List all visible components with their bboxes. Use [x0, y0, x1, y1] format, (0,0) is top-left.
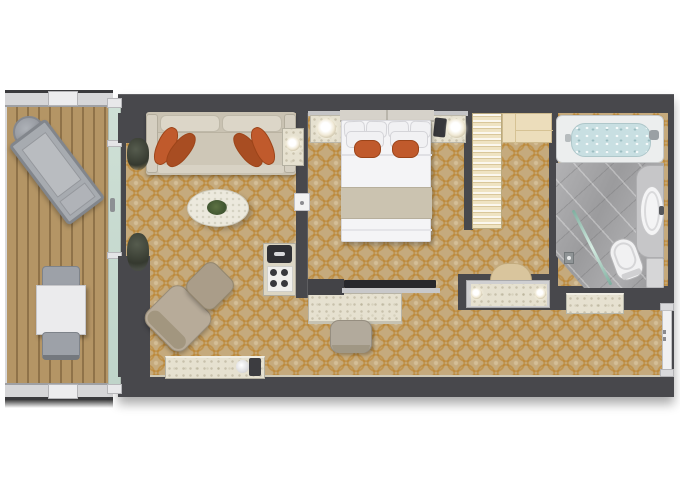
entry-hall	[556, 310, 668, 377]
telephone	[433, 117, 447, 137]
coffee-machine	[267, 245, 292, 263]
bathtub-water	[571, 123, 651, 157]
sliding-door-handle	[110, 198, 115, 212]
wardrobe-hanging-rail	[472, 113, 502, 229]
balcony-shadow	[5, 399, 113, 408]
closet-cabinet-seam-h	[515, 130, 553, 131]
bed-accent-pillow-left	[354, 140, 381, 158]
bed-foot-fold	[342, 229, 432, 231]
side-table-lamp	[286, 137, 300, 151]
desk-chair	[330, 320, 372, 353]
outdoor-dining-table	[36, 285, 86, 335]
closet-cabinet	[502, 113, 552, 143]
shower-drain-dot	[567, 256, 571, 260]
cup-4	[281, 280, 288, 287]
entry-door-leaf	[662, 310, 672, 370]
balcony-railing-bottom-center	[48, 384, 78, 399]
hall-console-table	[566, 293, 624, 314]
ice-bucket	[236, 360, 249, 373]
bed-runner	[341, 187, 432, 219]
vanity-lamp-right	[535, 288, 546, 299]
tv-shelf	[342, 288, 440, 293]
cup-1	[270, 269, 277, 276]
coffee-table-plant	[207, 200, 227, 215]
potted-plant-upper	[127, 138, 149, 170]
coffee-machine-detail	[274, 252, 285, 256]
nightstand-lamp-left	[317, 119, 336, 138]
potted-plant-lower	[127, 233, 149, 271]
nightstand-lamp-right	[447, 119, 466, 138]
sink-inner-ring	[644, 191, 660, 231]
console-dark-item	[249, 358, 261, 376]
bathroom-door-leaf	[646, 258, 664, 288]
bathtub-faucet	[649, 130, 659, 140]
sink-faucet	[659, 206, 664, 215]
desk-chair-back	[332, 345, 370, 353]
balcony-railing-top-center	[48, 91, 78, 106]
tv-screen	[344, 280, 436, 288]
cup-3	[270, 280, 277, 287]
glass-wall-cap-bottom	[107, 384, 122, 394]
bathtub-jet	[565, 134, 571, 142]
tv-wall-return	[308, 279, 344, 295]
outdoor-chair-south	[42, 332, 80, 360]
toilet-seat-ring	[611, 240, 639, 273]
bed-accent-pillow-right	[392, 140, 419, 158]
cup-2	[281, 269, 288, 276]
closet-cabinet-seam-v	[515, 114, 516, 144]
glass-wall-cap-top	[107, 98, 122, 108]
vanity-lamp-left	[471, 288, 482, 299]
sofa-front-edge	[158, 165, 284, 173]
entry-door-handle-lower	[663, 337, 666, 341]
entry-door-frame-bottom	[660, 369, 674, 377]
bathtub	[556, 115, 664, 163]
entry-door-handle-upper	[663, 330, 666, 334]
shower-drain	[564, 252, 574, 264]
floorplan-canvas	[0, 0, 680, 486]
